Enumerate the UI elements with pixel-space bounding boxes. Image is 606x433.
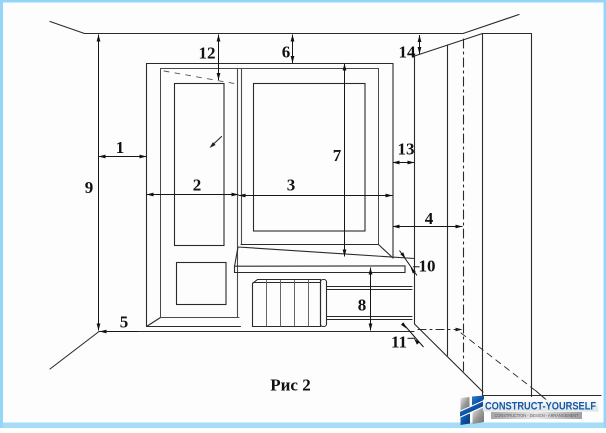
svg-text:12: 12 — [199, 44, 216, 63]
svg-text:13: 13 — [398, 140, 415, 159]
svg-text:7: 7 — [333, 146, 342, 165]
svg-text:3: 3 — [287, 176, 296, 195]
svg-text:6: 6 — [282, 43, 291, 62]
svg-text:CONSTRUCT-YOURSELF: CONSTRUCT-YOURSELF — [485, 401, 596, 413]
svg-text:9: 9 — [85, 178, 94, 197]
svg-text:5: 5 — [120, 313, 129, 332]
svg-text:11: 11 — [391, 333, 407, 352]
svg-text:10: 10 — [419, 257, 436, 276]
svg-text:8: 8 — [358, 296, 367, 315]
svg-text:2: 2 — [193, 176, 202, 195]
svg-text:Рис 2: Рис 2 — [270, 376, 310, 395]
svg-text:1: 1 — [116, 138, 125, 157]
svg-text:CONSTRUCTION - DESIGN - ARRANG: CONSTRUCTION - DESIGN - ARRANGEMENT — [495, 413, 579, 418]
svg-text:14: 14 — [399, 43, 417, 62]
svg-text:4: 4 — [425, 209, 434, 228]
